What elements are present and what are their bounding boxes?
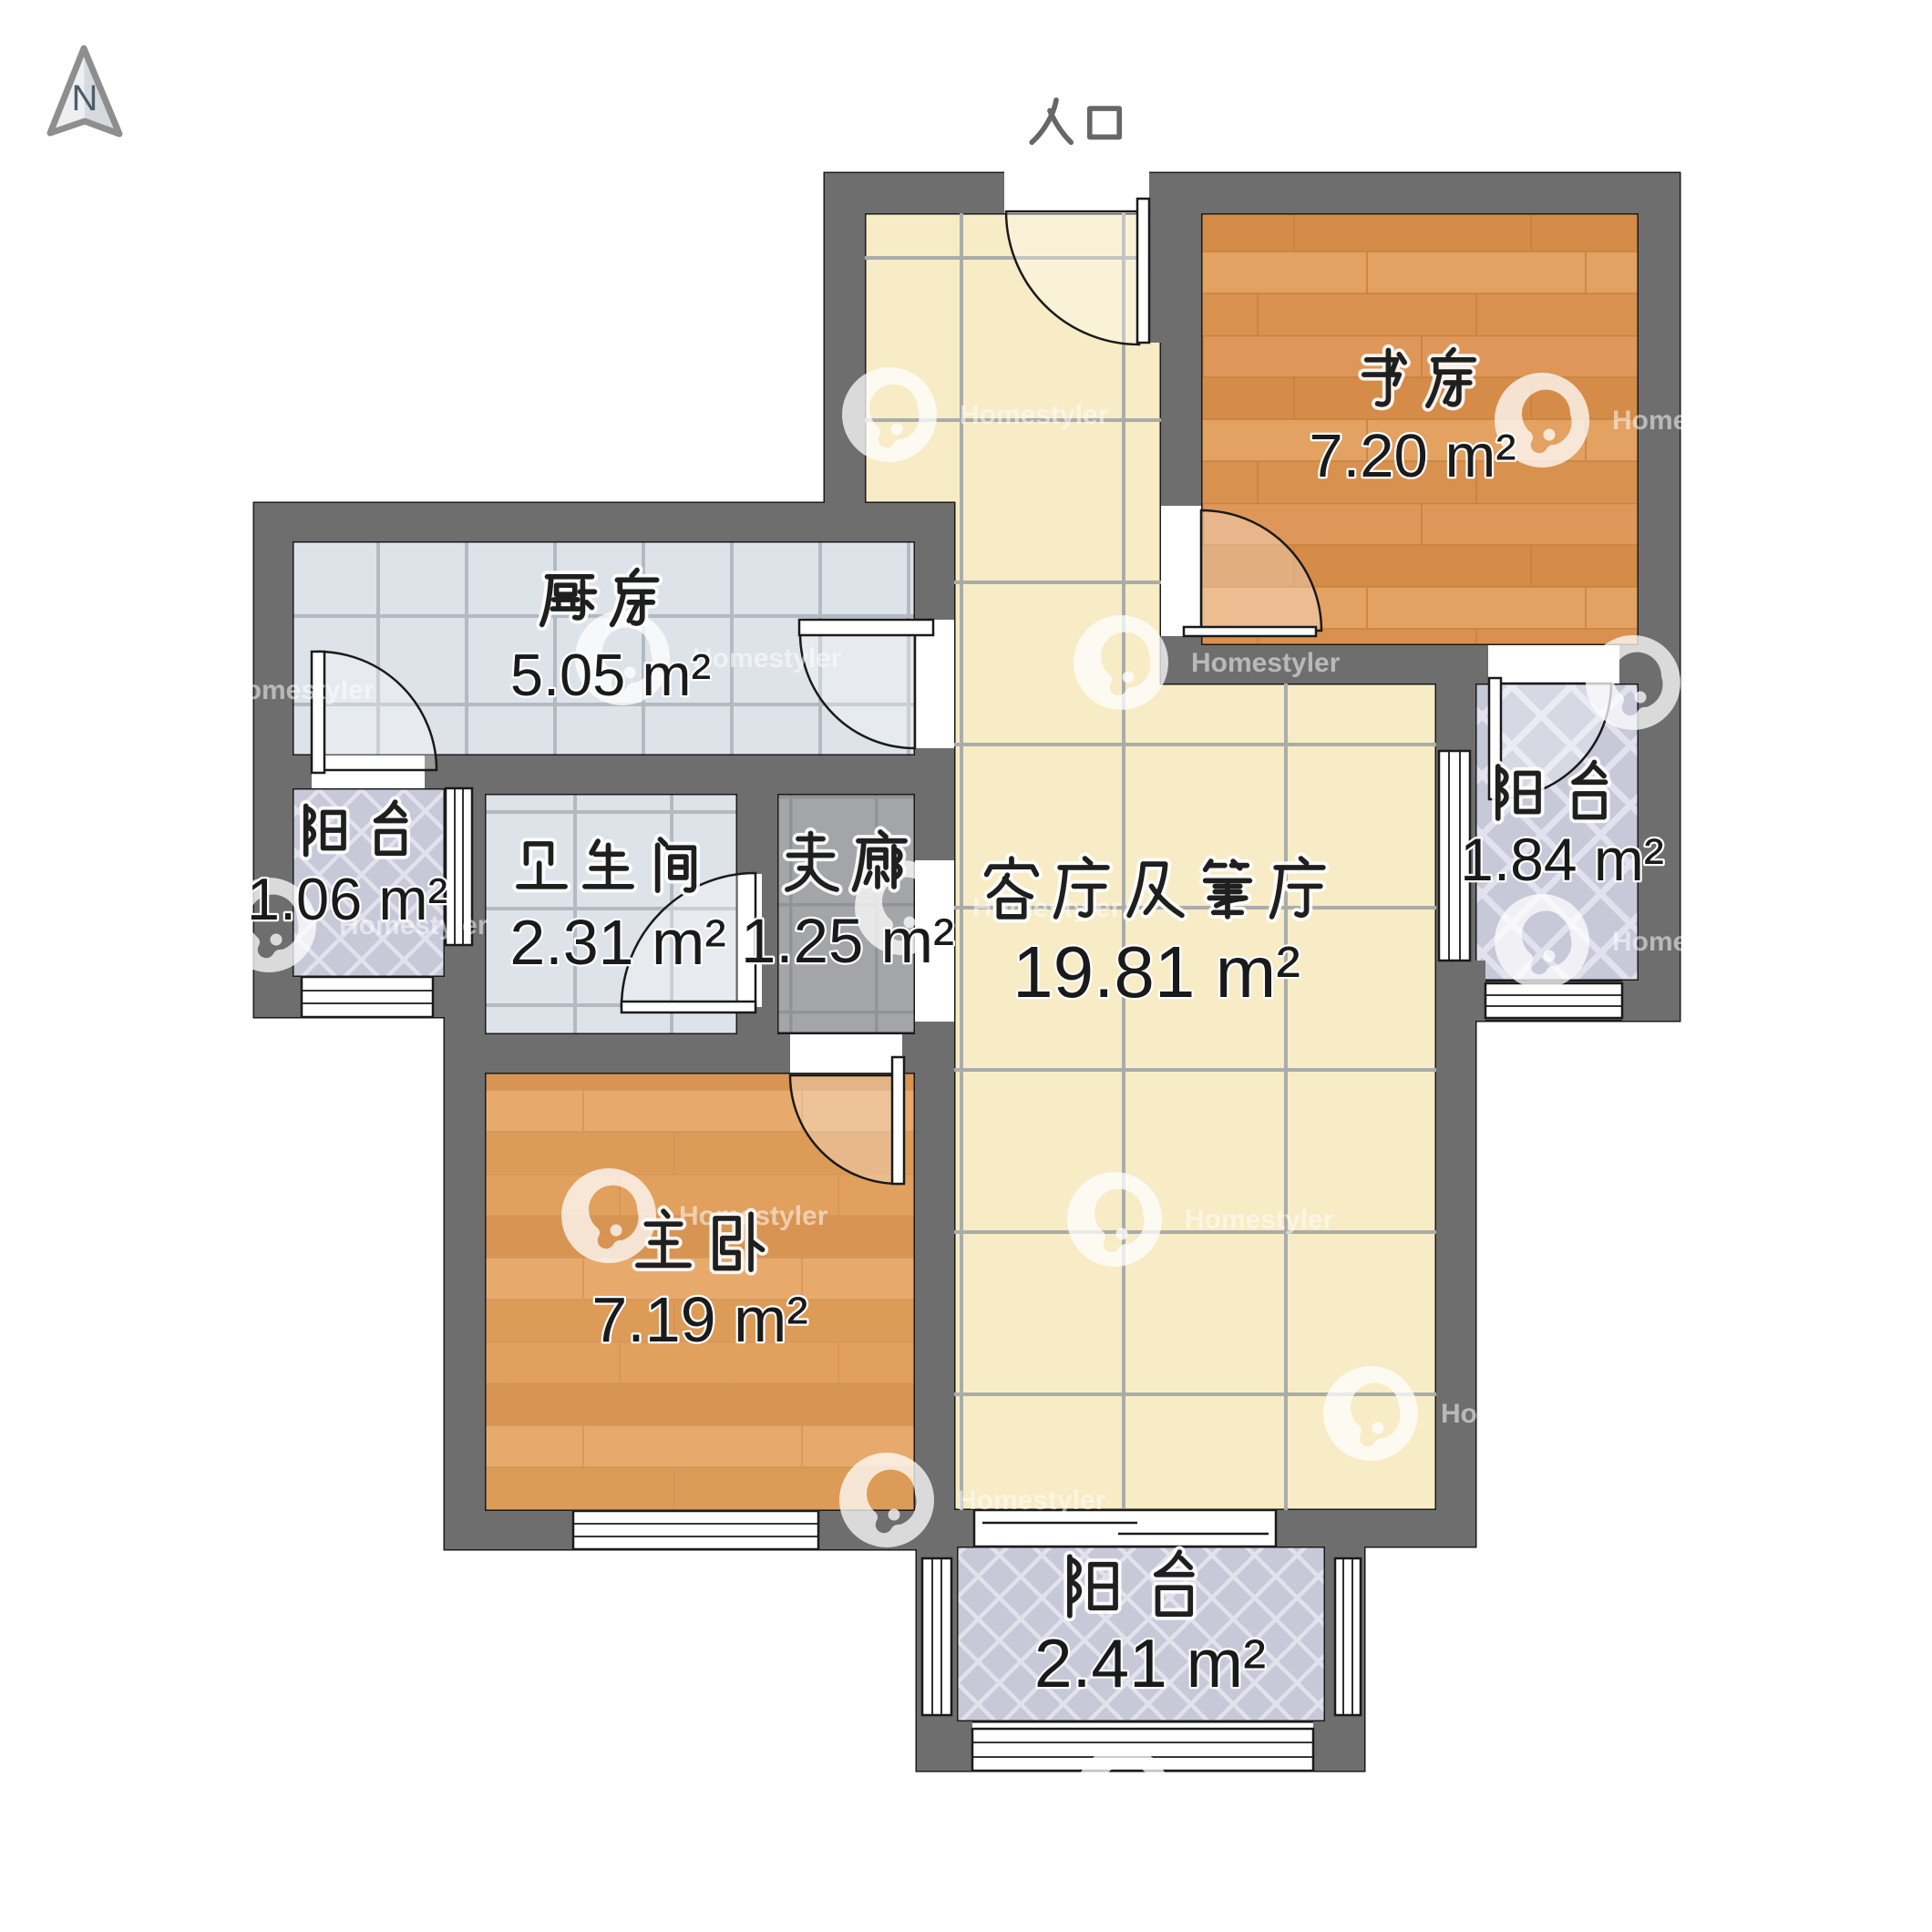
svg-text:Homestyler: Homestyler	[225, 675, 375, 705]
svg-text:Homestyler: Homestyler	[465, 396, 614, 426]
svg-text:2.41 m²: 2.41 m²	[1034, 1625, 1266, 1701]
svg-text:5.05 m²: 5.05 m²	[510, 642, 711, 708]
svg-text:Homestyler: Homestyler	[685, 118, 835, 148]
svg-text:Homestyler: Homestyler	[1185, 1205, 1334, 1235]
svg-text:Homestyler: Homestyler	[1188, 118, 1338, 148]
svg-text:1.25 m²: 1.25 m²	[741, 906, 954, 976]
svg-text:Homestyler: Homestyler	[1441, 1399, 1590, 1429]
svg-text:Homestyler: Homestyler	[1612, 406, 1762, 436]
svg-text:19.81 m²: 19.81 m²	[1012, 931, 1300, 1012]
svg-text:N: N	[72, 78, 98, 118]
svg-text:Homestyler: Homestyler	[1703, 668, 1853, 698]
svg-text:Homestyler: Homestyler	[1191, 648, 1341, 678]
svg-text:Homestyler: Homestyler	[215, 121, 365, 151]
svg-text:Homestyler: Homestyler	[960, 400, 1109, 430]
svg-text:Homestyler: Homestyler	[1705, 1207, 1855, 1238]
svg-text:7.20 m²: 7.20 m²	[1309, 422, 1516, 490]
svg-text:2.31 m²: 2.31 m²	[509, 907, 725, 978]
svg-text:Homestyler: Homestyler	[693, 643, 842, 673]
svg-text:Homestyler: Homestyler	[1703, 108, 1853, 138]
svg-text:1.06 m²: 1.06 m²	[247, 866, 447, 932]
svg-text:7.19 m²: 7.19 m²	[591, 1284, 807, 1355]
svg-text:1.84 m²: 1.84 m²	[1460, 826, 1664, 893]
svg-text:Homestyler: Homestyler	[957, 1485, 1106, 1516]
svg-text:Homestyler: Homestyler	[1584, 1746, 1733, 1776]
svg-text:Homestyler: Homestyler	[377, 1746, 527, 1776]
svg-text:Homestyler: Homestyler	[1193, 1780, 1342, 1810]
svg-text:Homestyler: Homestyler	[1851, 930, 1932, 960]
